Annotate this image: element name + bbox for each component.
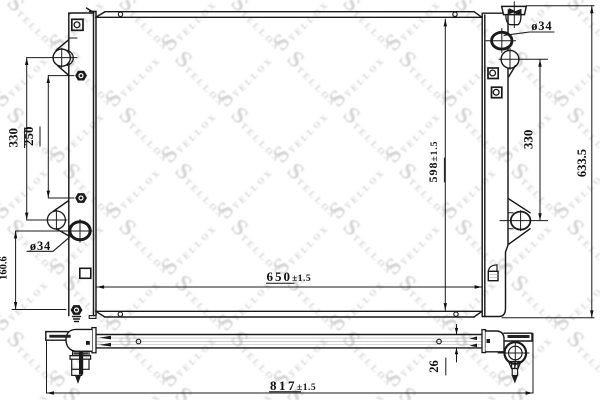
svg-text:ø34: ø34 [531,19,552,33]
svg-text:633.5: 633.5 [575,149,589,177]
svg-text:250: 250 [21,127,36,147]
svg-text:ø34: ø34 [30,239,51,253]
svg-text:330: 330 [521,130,536,150]
svg-text:160.6: 160.6 [0,256,10,280]
svg-text:26: 26 [427,360,441,373]
svg-text:330: 330 [5,128,20,148]
